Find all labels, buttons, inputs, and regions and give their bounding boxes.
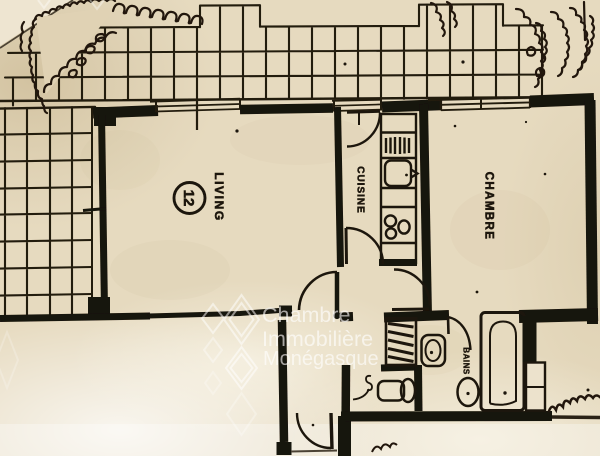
- svg-text:Chambre: Chambre: [262, 303, 350, 327]
- svg-text:Monégasque: Monégasque: [263, 348, 379, 370]
- svg-text:CHAMBRE: CHAMBRE: [483, 172, 495, 241]
- svg-text:BAINS: BAINS: [462, 347, 471, 375]
- svg-text:CUISINE: CUISINE: [355, 166, 366, 214]
- svg-text:12: 12: [180, 190, 197, 207]
- svg-text:LIVING: LIVING: [212, 172, 226, 222]
